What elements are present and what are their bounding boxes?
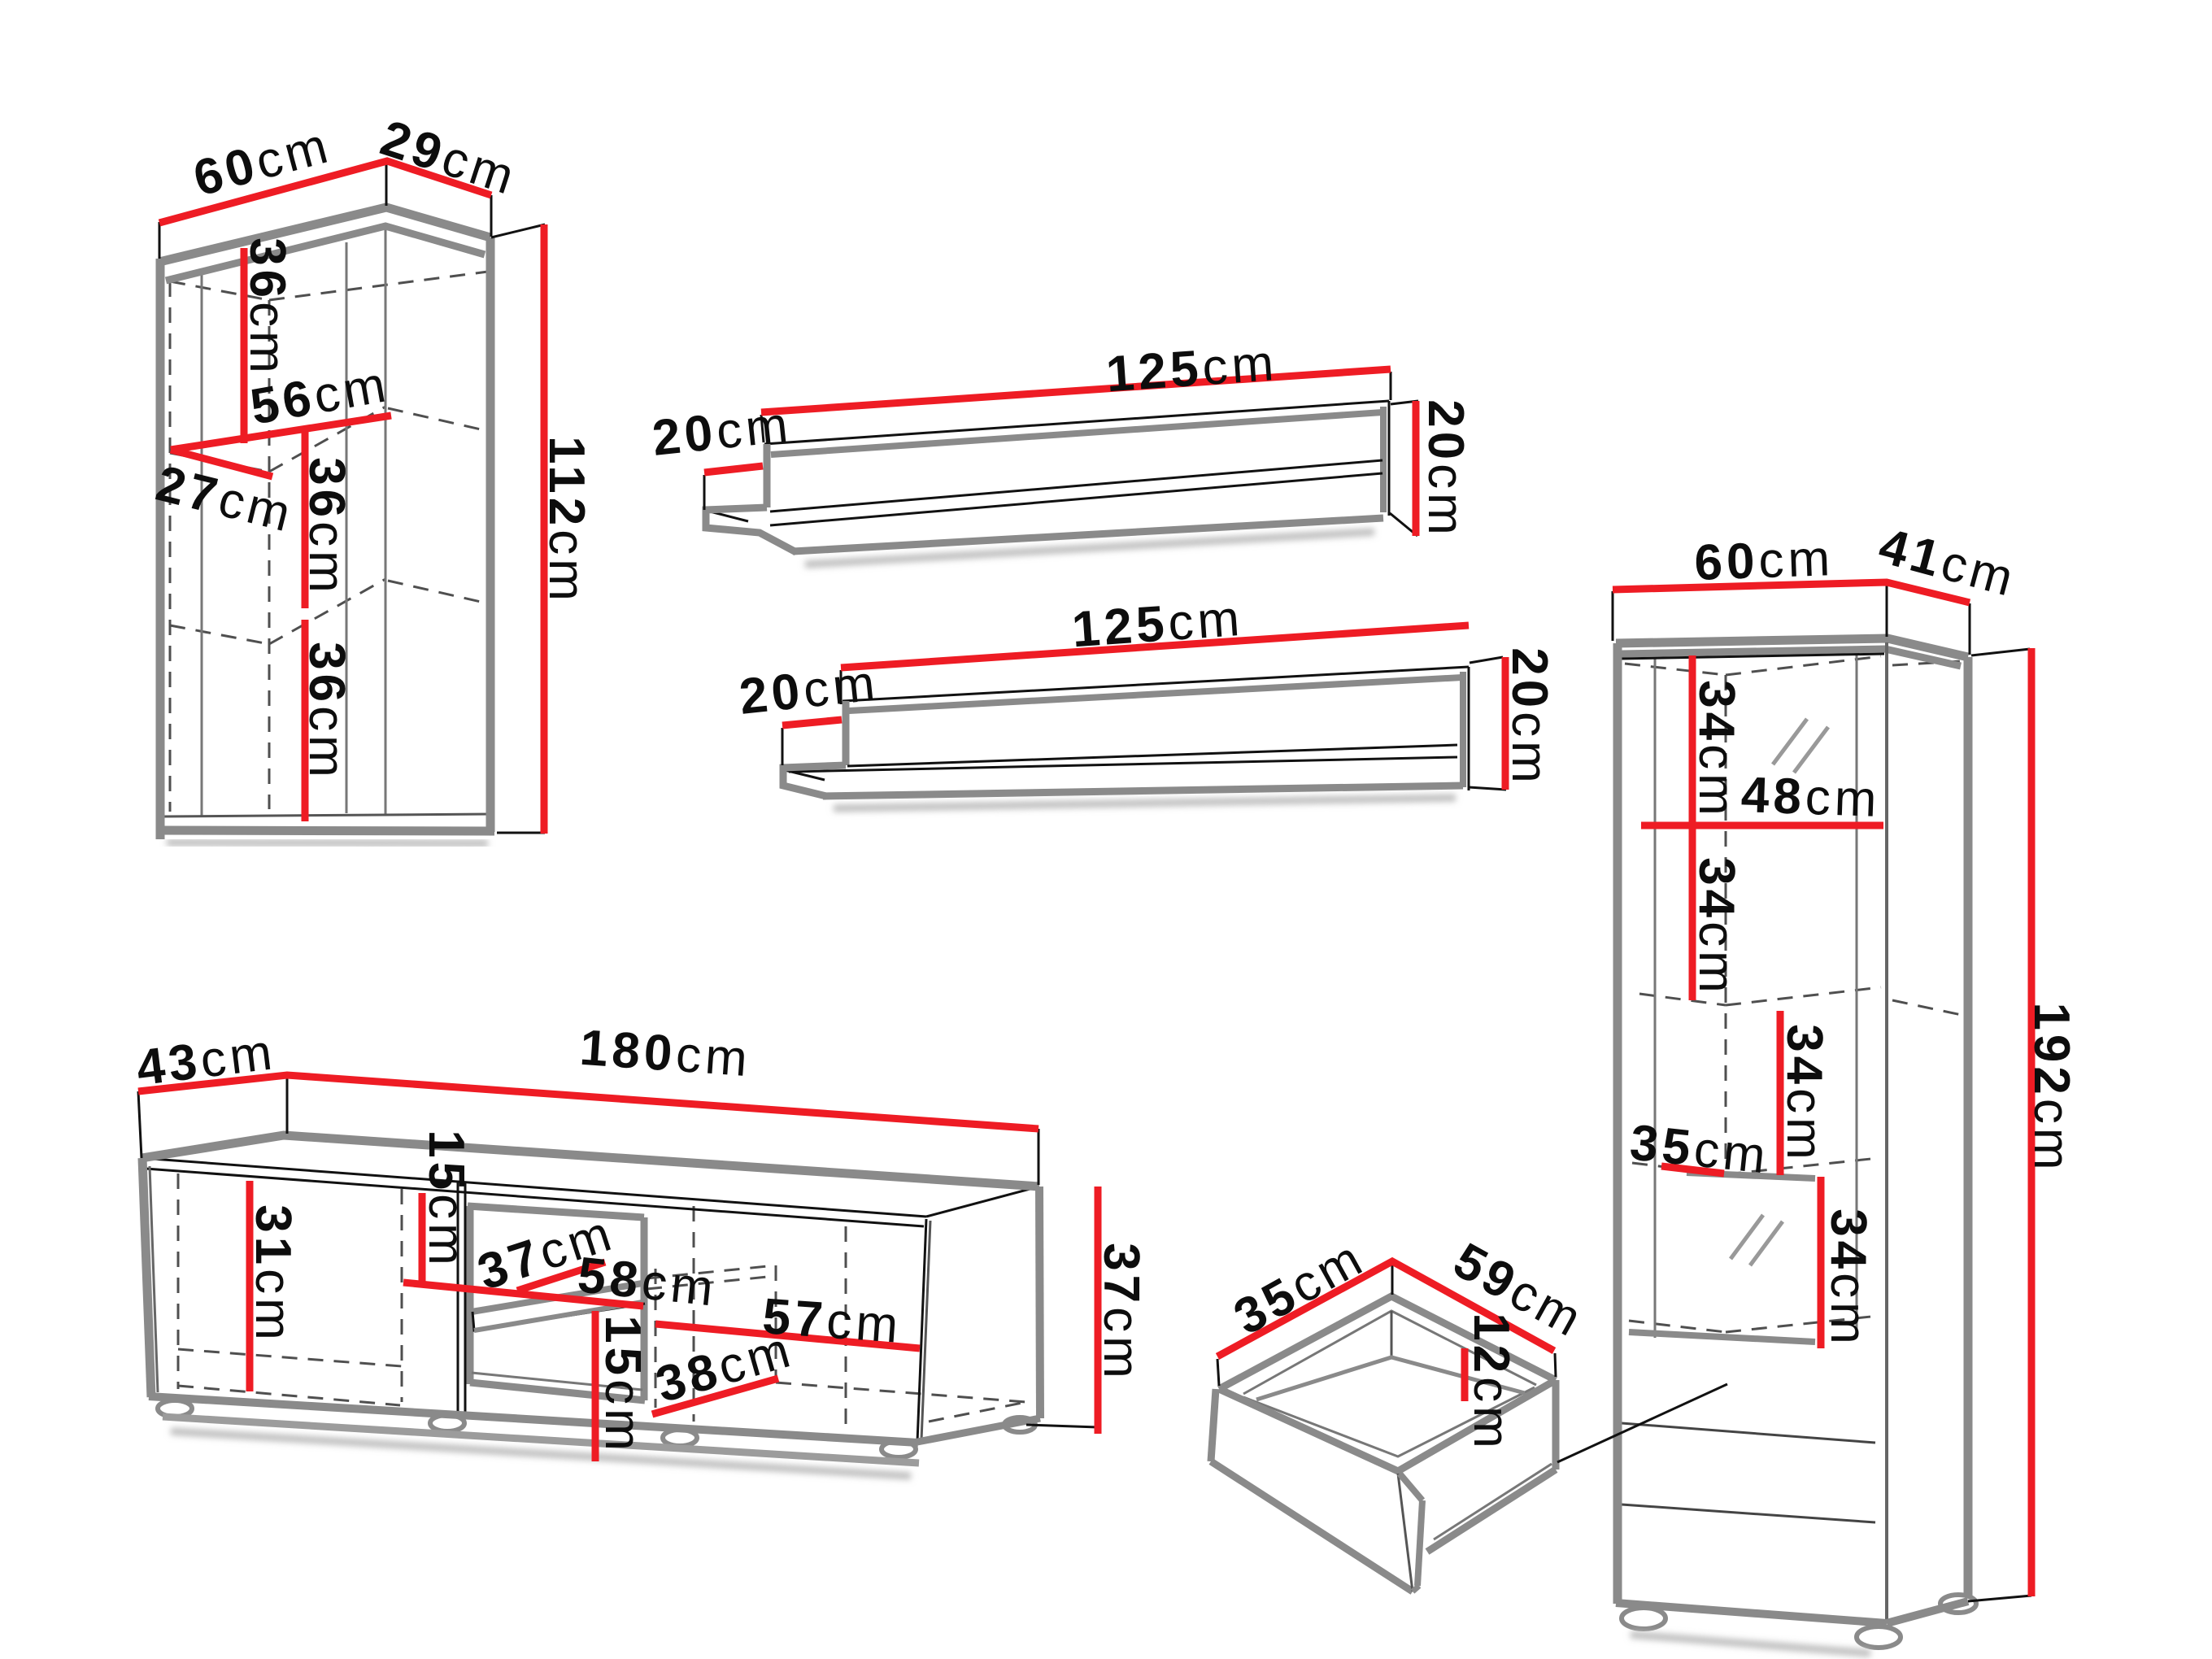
svg-text:15cm: 15cm (418, 1130, 474, 1269)
svg-text:125cm: 125cm (1104, 335, 1279, 403)
svg-text:36cm: 36cm (298, 457, 355, 597)
svg-text:37cm: 37cm (1093, 1243, 1149, 1382)
svg-text:34cm: 34cm (1688, 680, 1744, 820)
svg-text:36cm: 36cm (239, 237, 295, 377)
svg-text:20cm: 20cm (1501, 647, 1557, 787)
svg-text:36cm: 36cm (298, 642, 355, 782)
svg-text:125cm: 125cm (1070, 590, 1245, 659)
svg-text:34cm: 34cm (1688, 857, 1744, 997)
svg-text:180cm: 180cm (578, 1020, 753, 1088)
svg-text:31cm: 31cm (245, 1204, 301, 1344)
svg-text:192cm: 192cm (2023, 1002, 2079, 1173)
svg-text:60cm: 60cm (1693, 530, 1835, 591)
svg-text:12cm: 12cm (1463, 1313, 1519, 1452)
svg-text:34cm: 34cm (1776, 1024, 1832, 1164)
svg-text:48cm: 48cm (1740, 767, 1882, 828)
svg-text:20cm: 20cm (1417, 399, 1474, 539)
svg-text:112cm: 112cm (538, 436, 594, 605)
svg-text:34cm: 34cm (1820, 1208, 1876, 1348)
svg-text:15cm: 15cm (594, 1315, 651, 1455)
